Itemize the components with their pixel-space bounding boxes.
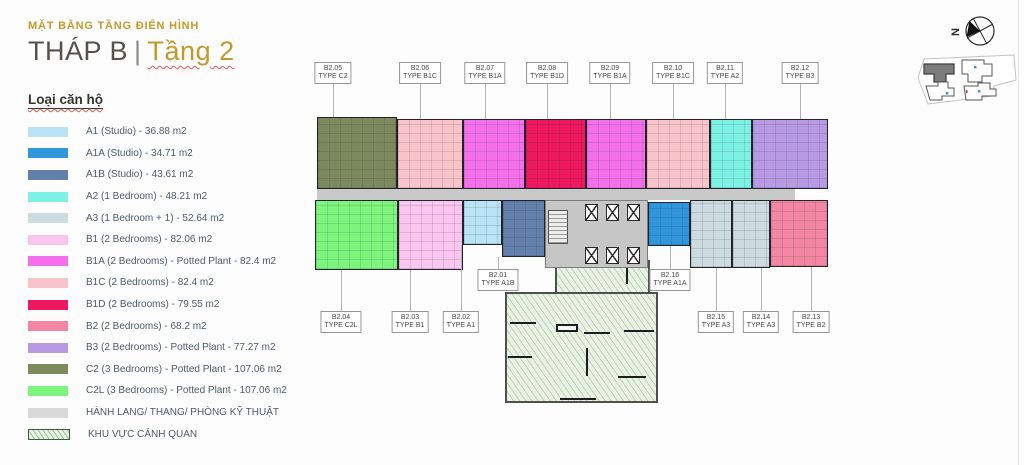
landscape-wall-8: [560, 398, 596, 400]
unit-label-B2.15: B2.15TYPE A3: [698, 311, 734, 333]
unit-B2.06[interactable]: [397, 119, 463, 189]
unit-label-code-B2.01: B2.01: [481, 272, 514, 281]
unit-label-type-B2.07: TYPE B1A: [468, 73, 501, 82]
unit-label-code-B2.16: B2.16: [653, 272, 686, 281]
unit-B2.14[interactable]: [732, 200, 770, 268]
unit-label-type-B2.13: TYPE B2: [797, 322, 826, 331]
unit-label-type-B2.01: TYPE A1B: [481, 280, 514, 289]
unit-label-type-B2.08: TYPE B1D: [530, 73, 564, 82]
elevator-shaft-3: [627, 204, 640, 221]
unit-label-B2.04: B2.04TYPE C2L: [320, 311, 361, 333]
unit-label-code-B2.09: B2.09: [593, 65, 626, 74]
elevator-shaft-1: [585, 204, 598, 221]
landscape-planter: [556, 324, 578, 332]
unit-B2.15[interactable]: [690, 200, 732, 268]
leader-B2.16: [670, 246, 671, 269]
site-map: [916, 52, 1020, 110]
leader-B2.02: [461, 245, 462, 311]
unit-label-type-B2.10: TYPE B1C: [656, 73, 690, 82]
page-edge: [1018, 0, 1019, 465]
unit-label-B2.05: B2.05TYPE C2: [314, 62, 351, 84]
leader-B2.10: [673, 81, 674, 119]
leader-B2.08: [547, 81, 548, 119]
unit-label-type-B2.09: TYPE B1A: [593, 73, 626, 82]
unit-label-code-B2.05: B2.05: [318, 65, 347, 74]
unit-label-code-B2.13: B2.13: [797, 314, 826, 323]
unit-B2.09[interactable]: [586, 119, 646, 189]
unit-label-type-B2.12: TYPE B3: [786, 73, 815, 82]
unit-B2.16[interactable]: [648, 202, 690, 246]
unit-B2.11[interactable]: [710, 119, 752, 189]
unit-label-type-B2.06: TYPE B1C: [403, 73, 437, 82]
unit-B2.10[interactable]: [646, 119, 710, 189]
unit-label-B2.07: B2.07TYPE B1A: [464, 62, 505, 84]
unit-label-code-B2.07: B2.07: [468, 65, 501, 74]
unit-label-B2.14: B2.14TYPE A3: [743, 311, 779, 333]
unit-label-code-B2.12: B2.12: [786, 65, 815, 74]
unit-B2.04[interactable]: [315, 200, 398, 270]
leader-B2.13: [811, 267, 812, 311]
floor-plan: B2.05TYPE C2B2.06TYPE B1CB2.07TYPE B1AB2…: [0, 0, 1024, 465]
unit-label-B2.06: B2.06TYPE B1C: [399, 62, 441, 84]
leader-B2.04: [341, 270, 342, 311]
unit-label-B2.13: B2.13TYPE B2: [793, 311, 830, 333]
unit-label-B2.02: B2.02TYPE A1: [443, 311, 479, 333]
leader-B2.14: [761, 268, 762, 311]
unit-label-type-B2.11: TYPE A2: [711, 73, 739, 82]
unit-B2.08[interactable]: [525, 119, 586, 189]
unit-label-code-B2.15: B2.15: [702, 314, 730, 323]
unit-B2.05[interactable]: [317, 117, 397, 189]
landscape-wall-7: [626, 268, 628, 284]
unit-label-code-B2.08: B2.08: [530, 65, 564, 74]
elevator-shaft-2: [606, 204, 619, 221]
unit-B2.01[interactable]: [502, 200, 545, 257]
leader-B2.15: [716, 268, 717, 311]
unit-B2.12[interactable]: [752, 119, 828, 189]
unit-label-type-B2.04: TYPE C2L: [324, 322, 357, 331]
unit-label-type-B2.16: TYPE A1A: [653, 280, 686, 289]
unit-label-code-B2.04: B2.04: [324, 314, 357, 323]
unit-label-code-B2.10: B2.10: [656, 65, 690, 74]
unit-label-B2.16: B2.16TYPE A1A: [649, 269, 690, 291]
leader-B2.11: [725, 81, 726, 119]
unit-label-type-B2.14: TYPE A3: [747, 322, 775, 331]
unit-label-code-B2.14: B2.14: [747, 314, 775, 323]
unit-label-type-B2.05: TYPE C2: [318, 73, 347, 82]
landscape-wall-6: [618, 376, 646, 378]
compass-icon: N: [946, 8, 1002, 54]
leader-B2.07: [485, 81, 486, 119]
unit-label-type-B2.02: TYPE A1: [447, 322, 475, 331]
landscape-wall-3: [624, 330, 654, 332]
unit-B2.13[interactable]: [770, 200, 828, 267]
unit-label-B2.09: B2.09TYPE B1A: [589, 62, 630, 84]
stairwell-1: [548, 210, 568, 244]
leader-B2.05: [333, 81, 334, 117]
unit-B2.03[interactable]: [398, 200, 463, 270]
unit-label-code-B2.03: B2.03: [396, 314, 425, 323]
unit-label-B2.01: B2.01TYPE A1B: [477, 269, 518, 291]
unit-label-code-B2.11: B2.11: [711, 65, 739, 74]
landscape-wall-2: [584, 332, 610, 334]
unit-label-type-B2.15: TYPE A3: [702, 322, 730, 331]
leader-B2.06: [420, 81, 421, 119]
landscape-wall-4: [508, 356, 532, 358]
corridor: [317, 189, 795, 200]
leader-B2.12: [800, 81, 801, 119]
elevator-shaft-5: [606, 247, 619, 264]
unit-label-B2.12: B2.12TYPE B3: [782, 62, 819, 84]
unit-label-type-B2.03: TYPE B1: [396, 322, 425, 331]
unit-label-code-B2.02: B2.02: [447, 314, 475, 323]
unit-label-B2.03: B2.03TYPE B1: [392, 311, 429, 333]
landscape-area-2: [505, 292, 658, 403]
unit-label-B2.10: B2.10TYPE B1C: [652, 62, 694, 84]
unit-label-B2.08: B2.08TYPE B1D: [526, 62, 568, 84]
unit-B2.07[interactable]: [463, 119, 525, 189]
compass-north-label: N: [950, 28, 962, 36]
leader-B2.01: [498, 257, 499, 269]
unit-B2.02[interactable]: [463, 200, 502, 245]
unit-label-B2.11: B2.11TYPE A2: [707, 62, 743, 84]
elevator-shaft-6: [627, 247, 640, 264]
unit-label-code-B2.06: B2.06: [403, 65, 437, 74]
leader-B2.09: [610, 81, 611, 119]
landscape-wall-5: [586, 348, 588, 376]
leader-B2.03: [410, 270, 411, 311]
floor-plan-slide: MẶT BẰNG TẦNG ĐIỂN HÌNH THÁP B|Tầng 2 Lo…: [0, 0, 1024, 465]
elevator-shaft-4: [585, 247, 598, 264]
landscape-wall-1: [510, 322, 536, 324]
